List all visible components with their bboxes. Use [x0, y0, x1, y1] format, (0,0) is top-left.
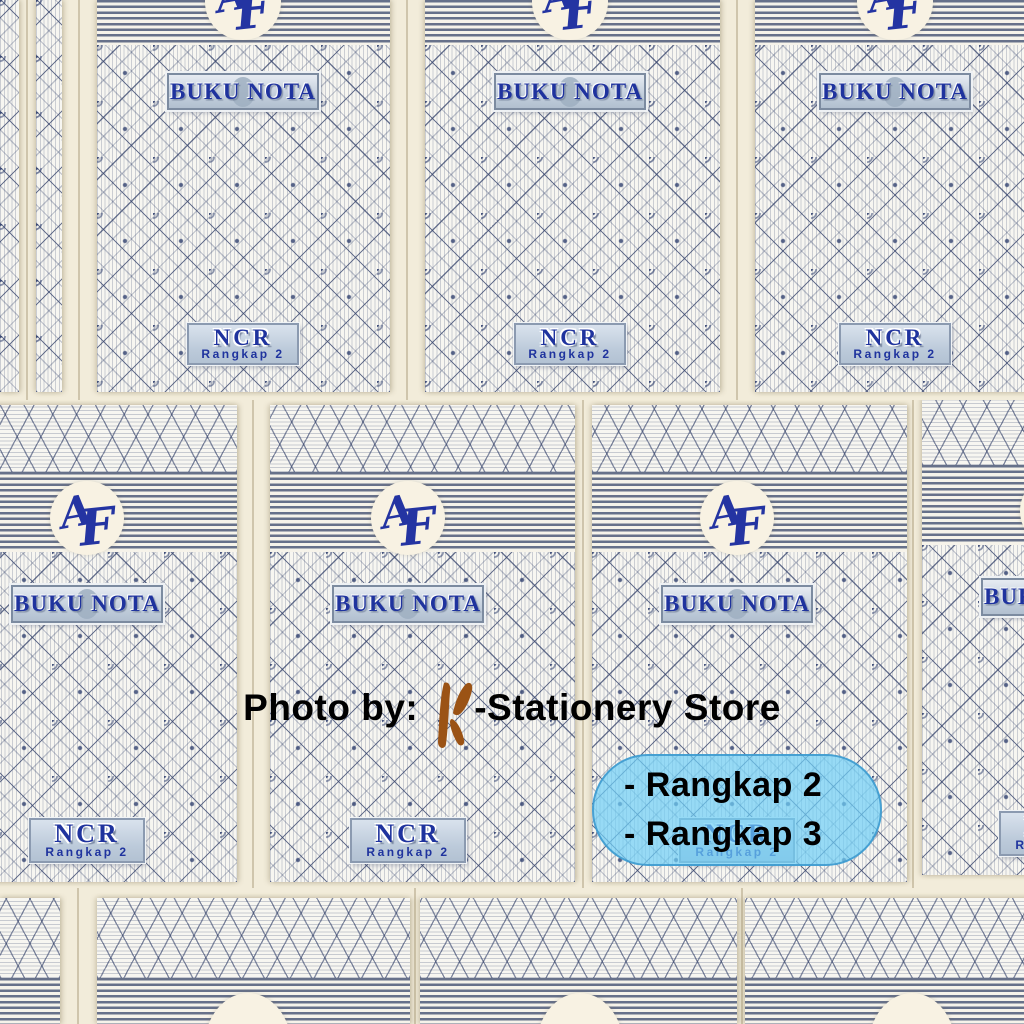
buku-nota-label: BUKU NOTA: [494, 73, 646, 110]
variant-option-1: - Rangkap 2: [624, 761, 880, 810]
cover-top-pattern: [922, 400, 1024, 465]
cover-title: BUKU NOTA: [497, 79, 643, 105]
notebook-cover: A F BUKU NOTA NCR Rangkap 2: [425, 0, 720, 392]
af-monogram-logo: A F: [50, 481, 124, 555]
book-edge-crease: [912, 400, 914, 888]
cover-stripes-band: [922, 465, 1024, 545]
rangkap-text: Rangkap 2: [528, 348, 611, 361]
monogram-letter-a: A: [546, 1017, 589, 1024]
book-edge-crease: [736, 0, 738, 400]
book-edge-crease: [78, 0, 80, 400]
ncr-badge: NCR Rangkap 2: [514, 323, 626, 365]
buku-nota-label: BUKU NOTA: [167, 73, 319, 110]
monogram-letter-f: F: [397, 500, 438, 553]
notebook-cover-partial: A F BUKU NOTA NCR Rangkap 2: [922, 400, 1024, 875]
ncr-text: NCR: [375, 822, 440, 846]
ncr-badge: NCR Rangkap 2: [29, 818, 145, 863]
ncr-text: NCR: [214, 327, 273, 348]
notebook-cover: A F BUKU NOTA NCR Rangkap 2: [97, 0, 390, 392]
variant-option-2: - Rangkap 3: [624, 810, 880, 859]
ncr-badge: NCR Rangkap 2: [350, 818, 466, 863]
notebook-cover: A F: [97, 898, 410, 1024]
monogram-letter-a: A: [878, 1017, 921, 1024]
notebook-cover: A F BUKU NOTA NCR Rangkap 2: [270, 405, 575, 882]
book-edge-crease: [406, 0, 408, 400]
cover-top-pattern: [592, 405, 907, 472]
notebook-cover-partial: [0, 0, 19, 392]
ncr-text: NCR: [54, 822, 119, 846]
watermark: Photo by: -Stationery Store: [0, 674, 1024, 742]
cover-top-pattern: [270, 405, 575, 472]
cover-title: BUKU NOTA: [335, 591, 481, 617]
ncr-badge: NCR Rangkap 2: [187, 323, 299, 365]
ncr-badge: NCR Rangkap 2: [839, 323, 951, 365]
ncr-text: NCR: [541, 327, 600, 348]
notebook-cover: A F: [745, 898, 1024, 1024]
product-photo: A F BUKU NOTA NCR Rangkap 2 A F BUKU NOT…: [0, 0, 1024, 1024]
cover-title: BUKU NOTA: [664, 591, 810, 617]
buku-nota-label: BUKU NOTA: [819, 73, 971, 110]
cover-top-pattern: [0, 405, 237, 472]
notebook-cover: A F BUKU NOTA NCR Rangkap 2: [0, 405, 237, 882]
cover-top-pattern: [420, 898, 737, 978]
cover-stripes-band: [0, 978, 60, 1024]
cover-title: BUKU NOTA: [984, 584, 1024, 610]
watermark-suffix: -Stationery Store: [474, 687, 781, 729]
book-row-top: A F BUKU NOTA NCR Rangkap 2 A F BUKU NOT…: [0, 0, 1024, 400]
buku-nota-label: BUKU NOTA: [332, 585, 484, 623]
notebook-cover-partial: [0, 898, 60, 1024]
monogram-letter-f: F: [726, 500, 767, 553]
cover-title: BUKU NOTA: [14, 591, 160, 617]
rangkap-text: Rangkap 2: [45, 846, 128, 859]
buku-nota-label: BUKU NOTA: [11, 585, 163, 623]
monogram-letter-f: F: [76, 500, 117, 553]
cover-top-pattern: [745, 898, 1024, 978]
cover-top-pattern: [97, 898, 410, 978]
monogram-letter-f: F: [559, 0, 600, 38]
rangkap-text: Rangkap 2: [853, 348, 936, 361]
watermark-prefix: Photo by:: [243, 687, 418, 729]
cover-title: BUKU NOTA: [170, 79, 316, 105]
book-edge-crease: [741, 888, 743, 1024]
monogram-letter-f: F: [232, 0, 273, 38]
variant-bubble: - Rangkap 2 - Rangkap 3: [592, 754, 882, 866]
monogram-letter-f: F: [884, 0, 925, 38]
notebook-cover: A F BUKU NOTA NCR Rangkap 2: [755, 0, 1024, 392]
book-edge-crease: [26, 0, 28, 400]
book-edge-crease: [252, 400, 254, 888]
ncr-text: NCR: [866, 327, 925, 348]
cover-title: BUKU NOTA: [822, 79, 968, 105]
buku-nota-label: BUKU NOTA: [981, 578, 1024, 616]
ncr-badge: NCR Rangkap 2: [999, 811, 1024, 856]
book-edge-crease: [414, 888, 416, 1024]
af-monogram-logo: A F: [371, 481, 445, 555]
book-edge-crease: [77, 888, 79, 1024]
monogram-letter-a: A: [214, 1017, 257, 1024]
k-butterfly-logo-icon: [434, 682, 474, 750]
rangkap-text: Rangkap 2: [1015, 839, 1024, 852]
notebook-cover: A F: [420, 898, 737, 1024]
book-edge-crease: [582, 400, 584, 888]
rangkap-text: Rangkap 2: [201, 348, 284, 361]
rangkap-text: Rangkap 2: [366, 846, 449, 859]
buku-nota-label: BUKU NOTA: [661, 585, 813, 623]
book-row-bottom: A F A F A F: [0, 888, 1024, 1024]
notebook-cover-partial: [36, 0, 62, 392]
af-monogram-logo: A F: [700, 481, 774, 555]
cover-top-pattern: [0, 898, 60, 978]
